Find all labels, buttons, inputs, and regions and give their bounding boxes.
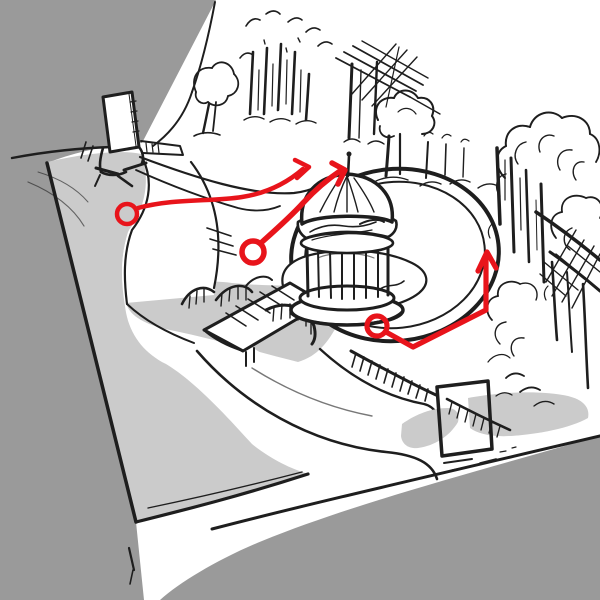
park-sketch-image: Park gazebo route sketch Paved plaza Str… [0,0,600,600]
gazebo-spire-finial [347,152,352,157]
gazebo-base-upper [300,286,394,310]
gazebo-spire [348,156,349,176]
sketch-svg: Park gazebo route sketch Paved plaza Str… [0,0,600,600]
